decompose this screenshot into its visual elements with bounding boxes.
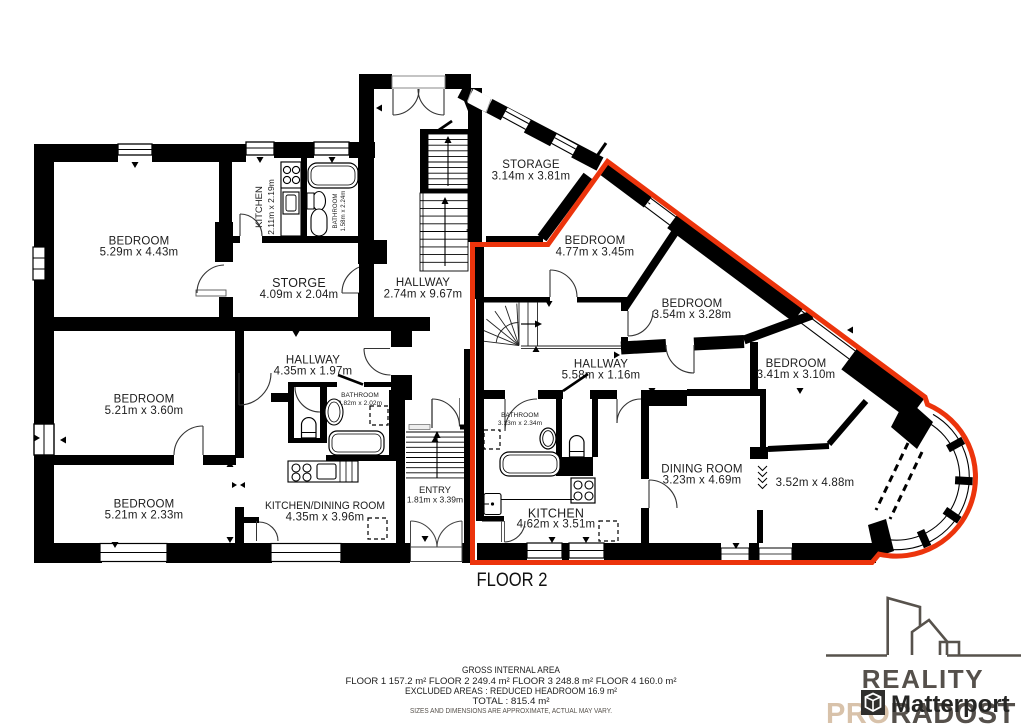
svg-text:4.62m x 3.51m: 4.62m x 3.51m: [517, 519, 596, 531]
svg-text:5.29m x 4.43m: 5.29m x 4.43m: [100, 247, 179, 259]
svg-text:3.23m x 4.69m: 3.23m x 4.69m: [663, 475, 742, 487]
svg-text:HALLWAY: HALLWAY: [396, 277, 450, 289]
svg-text:KITCHEN/DINING ROOM: KITCHEN/DINING ROOM: [265, 500, 385, 512]
svg-text:3.14m x 3.81m: 3.14m x 3.81m: [492, 171, 571, 183]
svg-text:GROSS INTERNAL AREA: GROSS INTERNAL AREA: [462, 665, 561, 676]
svg-text:5.21m x 2.33m: 5.21m x 2.33m: [105, 510, 184, 522]
svg-text:Matterport: Matterport: [891, 691, 1010, 718]
svg-text:4.09m x 2.04m: 4.09m x 2.04m: [260, 289, 339, 301]
svg-text:2.74m x 9.67m: 2.74m x 9.67m: [384, 289, 463, 301]
svg-text:BEDROOM: BEDROOM: [114, 394, 175, 406]
svg-text:4.77m x 3.45m: 4.77m x 3.45m: [556, 247, 635, 259]
svg-text:2.11m x 2.19m: 2.11m x 2.19m: [266, 179, 276, 235]
svg-text:3.41m x 3.10m: 3.41m x 3.10m: [757, 369, 836, 381]
svg-text:2.82m x 2.02m: 2.82m x 2.02m: [338, 400, 382, 407]
svg-text:5.58m x 1.16m: 5.58m x 1.16m: [562, 370, 641, 382]
svg-text:3.52m x 4.88m: 3.52m x 4.88m: [776, 477, 855, 489]
svg-text:BATHROOM: BATHROOM: [333, 193, 339, 228]
svg-text:SIZES AND DIMENSIONS ARE APPRO: SIZES AND DIMENSIONS ARE APPROXIMATE, AC…: [410, 706, 612, 715]
svg-text:KITCHEN: KITCHEN: [254, 186, 265, 228]
svg-text:1.81m x 3.39m: 1.81m x 3.39m: [407, 495, 463, 505]
svg-text:3.13m x 2.34m: 3.13m x 2.34m: [498, 420, 542, 427]
svg-text:REALITY: REALITY: [862, 664, 984, 694]
svg-text:STORGE: STORGE: [272, 276, 326, 290]
svg-text:3.54m x 3.28m: 3.54m x 3.28m: [653, 309, 732, 321]
svg-text:1.58m x 2.24m: 1.58m x 2.24m: [341, 191, 347, 232]
svg-text:4.35m x 3.96m: 4.35m x 3.96m: [286, 512, 365, 524]
svg-text:STORAGE: STORAGE: [502, 159, 560, 171]
svg-text:5.21m x 3.60m: 5.21m x 3.60m: [105, 405, 184, 417]
svg-text:BATHROOM: BATHROOM: [341, 392, 379, 399]
svg-text:BEDROOM: BEDROOM: [565, 235, 626, 247]
svg-text:FLOOR 2: FLOOR 2: [477, 570, 548, 591]
svg-text:BATHROOM: BATHROOM: [501, 412, 539, 419]
